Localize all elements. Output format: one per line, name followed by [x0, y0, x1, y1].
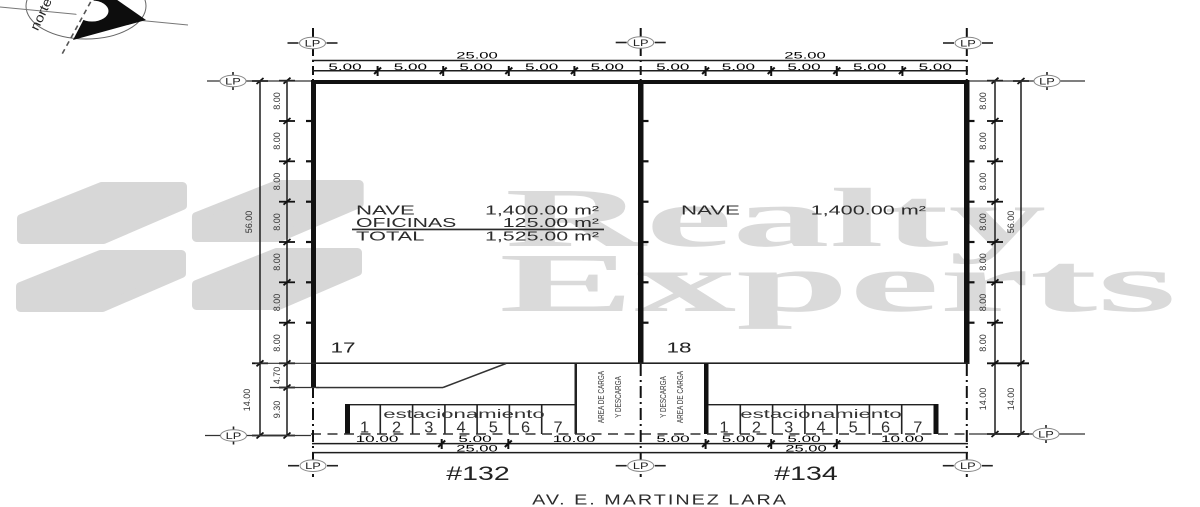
svg-text:AREA DE CARGA: AREA DE CARGA — [675, 371, 685, 423]
svg-text:8.00: 8.00 — [978, 253, 988, 271]
svg-text:5.00: 5.00 — [853, 61, 887, 72]
svg-text:10.00: 10.00 — [356, 433, 399, 444]
svg-text:TOTAL: TOTAL — [356, 229, 425, 243]
svg-text:8.00: 8.00 — [272, 173, 282, 191]
svg-text:OFICINAS: OFICINAS — [356, 216, 456, 230]
svg-text:5.00: 5.00 — [591, 61, 625, 72]
svg-text:10.00: 10.00 — [881, 433, 924, 444]
svg-text:8.00: 8.00 — [978, 213, 988, 231]
svg-text:#134: #134 — [774, 464, 837, 485]
svg-text:8.00: 8.00 — [978, 132, 988, 150]
svg-text:1,400.00 m²: 1,400.00 m² — [811, 203, 927, 217]
svg-text:LP: LP — [960, 39, 976, 49]
svg-text:8.00: 8.00 — [272, 213, 282, 231]
svg-text:8.00: 8.00 — [272, 334, 282, 352]
svg-text:8.00: 8.00 — [978, 294, 988, 312]
svg-text:LP: LP — [1039, 77, 1055, 87]
svg-text:14.00: 14.00 — [978, 388, 988, 411]
svg-text:8.00: 8.00 — [272, 92, 282, 110]
svg-text:17: 17 — [330, 340, 355, 356]
svg-text:8.00: 8.00 — [272, 253, 282, 271]
svg-text:56.00: 56.00 — [244, 211, 254, 234]
svg-text:AV. E. MARTINEZ LARA: AV. E. MARTINEZ LARA — [532, 491, 788, 507]
svg-text:5.00: 5.00 — [525, 61, 559, 72]
svg-text:8.00: 8.00 — [978, 334, 988, 352]
svg-text:LP: LP — [960, 462, 976, 472]
svg-text:LP: LP — [633, 462, 649, 472]
svg-text:14.00: 14.00 — [1006, 388, 1016, 411]
svg-text:10.00: 10.00 — [553, 433, 596, 444]
svg-text:LP: LP — [226, 431, 242, 441]
svg-text:NAVE: NAVE — [681, 203, 740, 217]
svg-text:LP: LP — [305, 462, 321, 472]
svg-text:Y DESCARGA: Y DESCARGA — [613, 376, 623, 418]
svg-text:5.00: 5.00 — [459, 61, 493, 72]
svg-text:LP: LP — [225, 77, 241, 87]
svg-text:1,525.00 m²: 1,525.00 m² — [485, 229, 599, 243]
svg-text:14.00: 14.00 — [242, 389, 252, 412]
svg-text:Y DESCARGA: Y DESCARGA — [658, 376, 668, 418]
svg-text:8.00: 8.00 — [978, 92, 988, 110]
svg-text:25.00: 25.00 — [456, 50, 498, 61]
svg-text:25.00: 25.00 — [785, 443, 827, 454]
svg-text:4.70: 4.70 — [272, 367, 282, 385]
svg-text:#132: #132 — [446, 464, 509, 485]
svg-text:25.00: 25.00 — [784, 50, 826, 61]
svg-text:LP: LP — [305, 39, 321, 49]
svg-text:5.00: 5.00 — [394, 61, 428, 72]
svg-text:Experts: Experts — [499, 236, 1176, 329]
svg-text:56.00: 56.00 — [1006, 211, 1016, 234]
svg-text:8.00: 8.00 — [272, 132, 282, 150]
svg-text:9.30: 9.30 — [272, 401, 282, 419]
svg-text:8.00: 8.00 — [272, 294, 282, 312]
svg-text:5.00: 5.00 — [722, 433, 756, 444]
svg-text:25.00: 25.00 — [456, 443, 498, 454]
svg-text:LP: LP — [1038, 430, 1054, 440]
svg-text:5.00: 5.00 — [787, 61, 821, 72]
svg-text:8.00: 8.00 — [978, 173, 988, 191]
svg-text:5.00: 5.00 — [656, 433, 690, 444]
svg-text:norte: norte — [27, 0, 55, 33]
svg-text:5.00: 5.00 — [328, 61, 362, 72]
svg-text:AREA DE CARGA: AREA DE CARGA — [596, 371, 606, 423]
svg-text:LP: LP — [633, 38, 649, 48]
svg-text:5.00: 5.00 — [722, 61, 756, 72]
svg-text:5.00: 5.00 — [656, 61, 690, 72]
svg-text:5.00: 5.00 — [919, 61, 953, 72]
svg-text:18: 18 — [666, 340, 691, 356]
svg-text:125.00 m²: 125.00 m² — [503, 216, 599, 230]
